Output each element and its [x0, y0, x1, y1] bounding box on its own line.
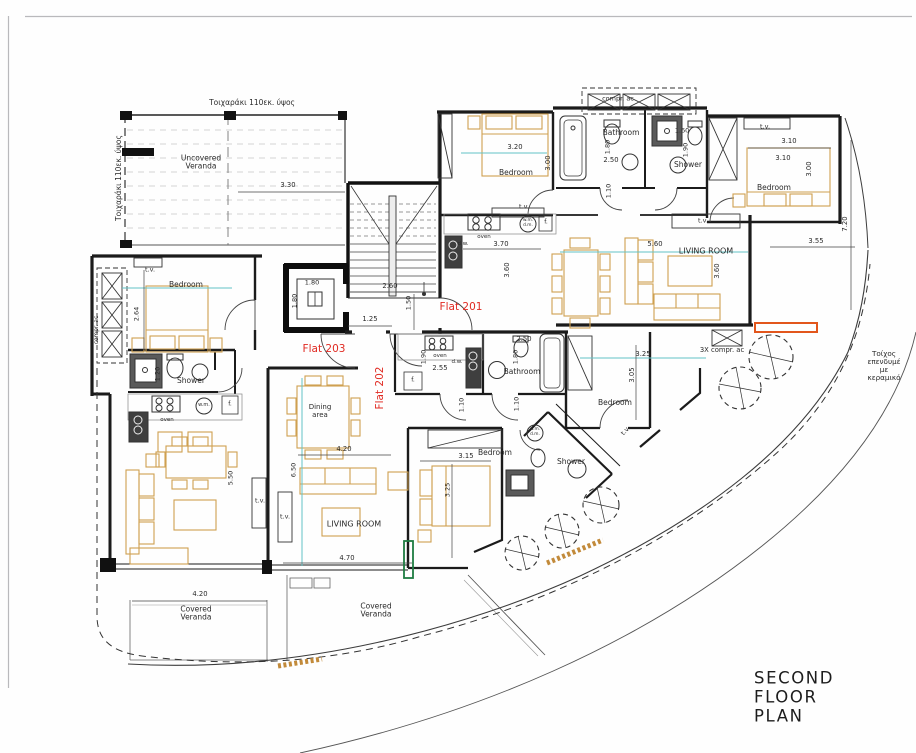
stairwell [348, 183, 440, 298]
site-curves [97, 118, 916, 753]
bathroom-fixtures [130, 116, 702, 496]
elevator [284, 264, 348, 332]
doors [218, 188, 734, 450]
hatch-bands [278, 540, 603, 666]
closets [97, 88, 790, 542]
plan-title: SECOND FLOOR PLAN [754, 669, 862, 726]
uncovered-veranda [120, 111, 347, 248]
floor-plan-drawing [0, 0, 916, 753]
floor-plan-page: Τοιχαράκι 110εκ. ύψοςcompr. act.v.1.60Ba… [0, 0, 916, 753]
dimension-lines [132, 140, 855, 601]
orange-wall-highlight [755, 323, 817, 332]
